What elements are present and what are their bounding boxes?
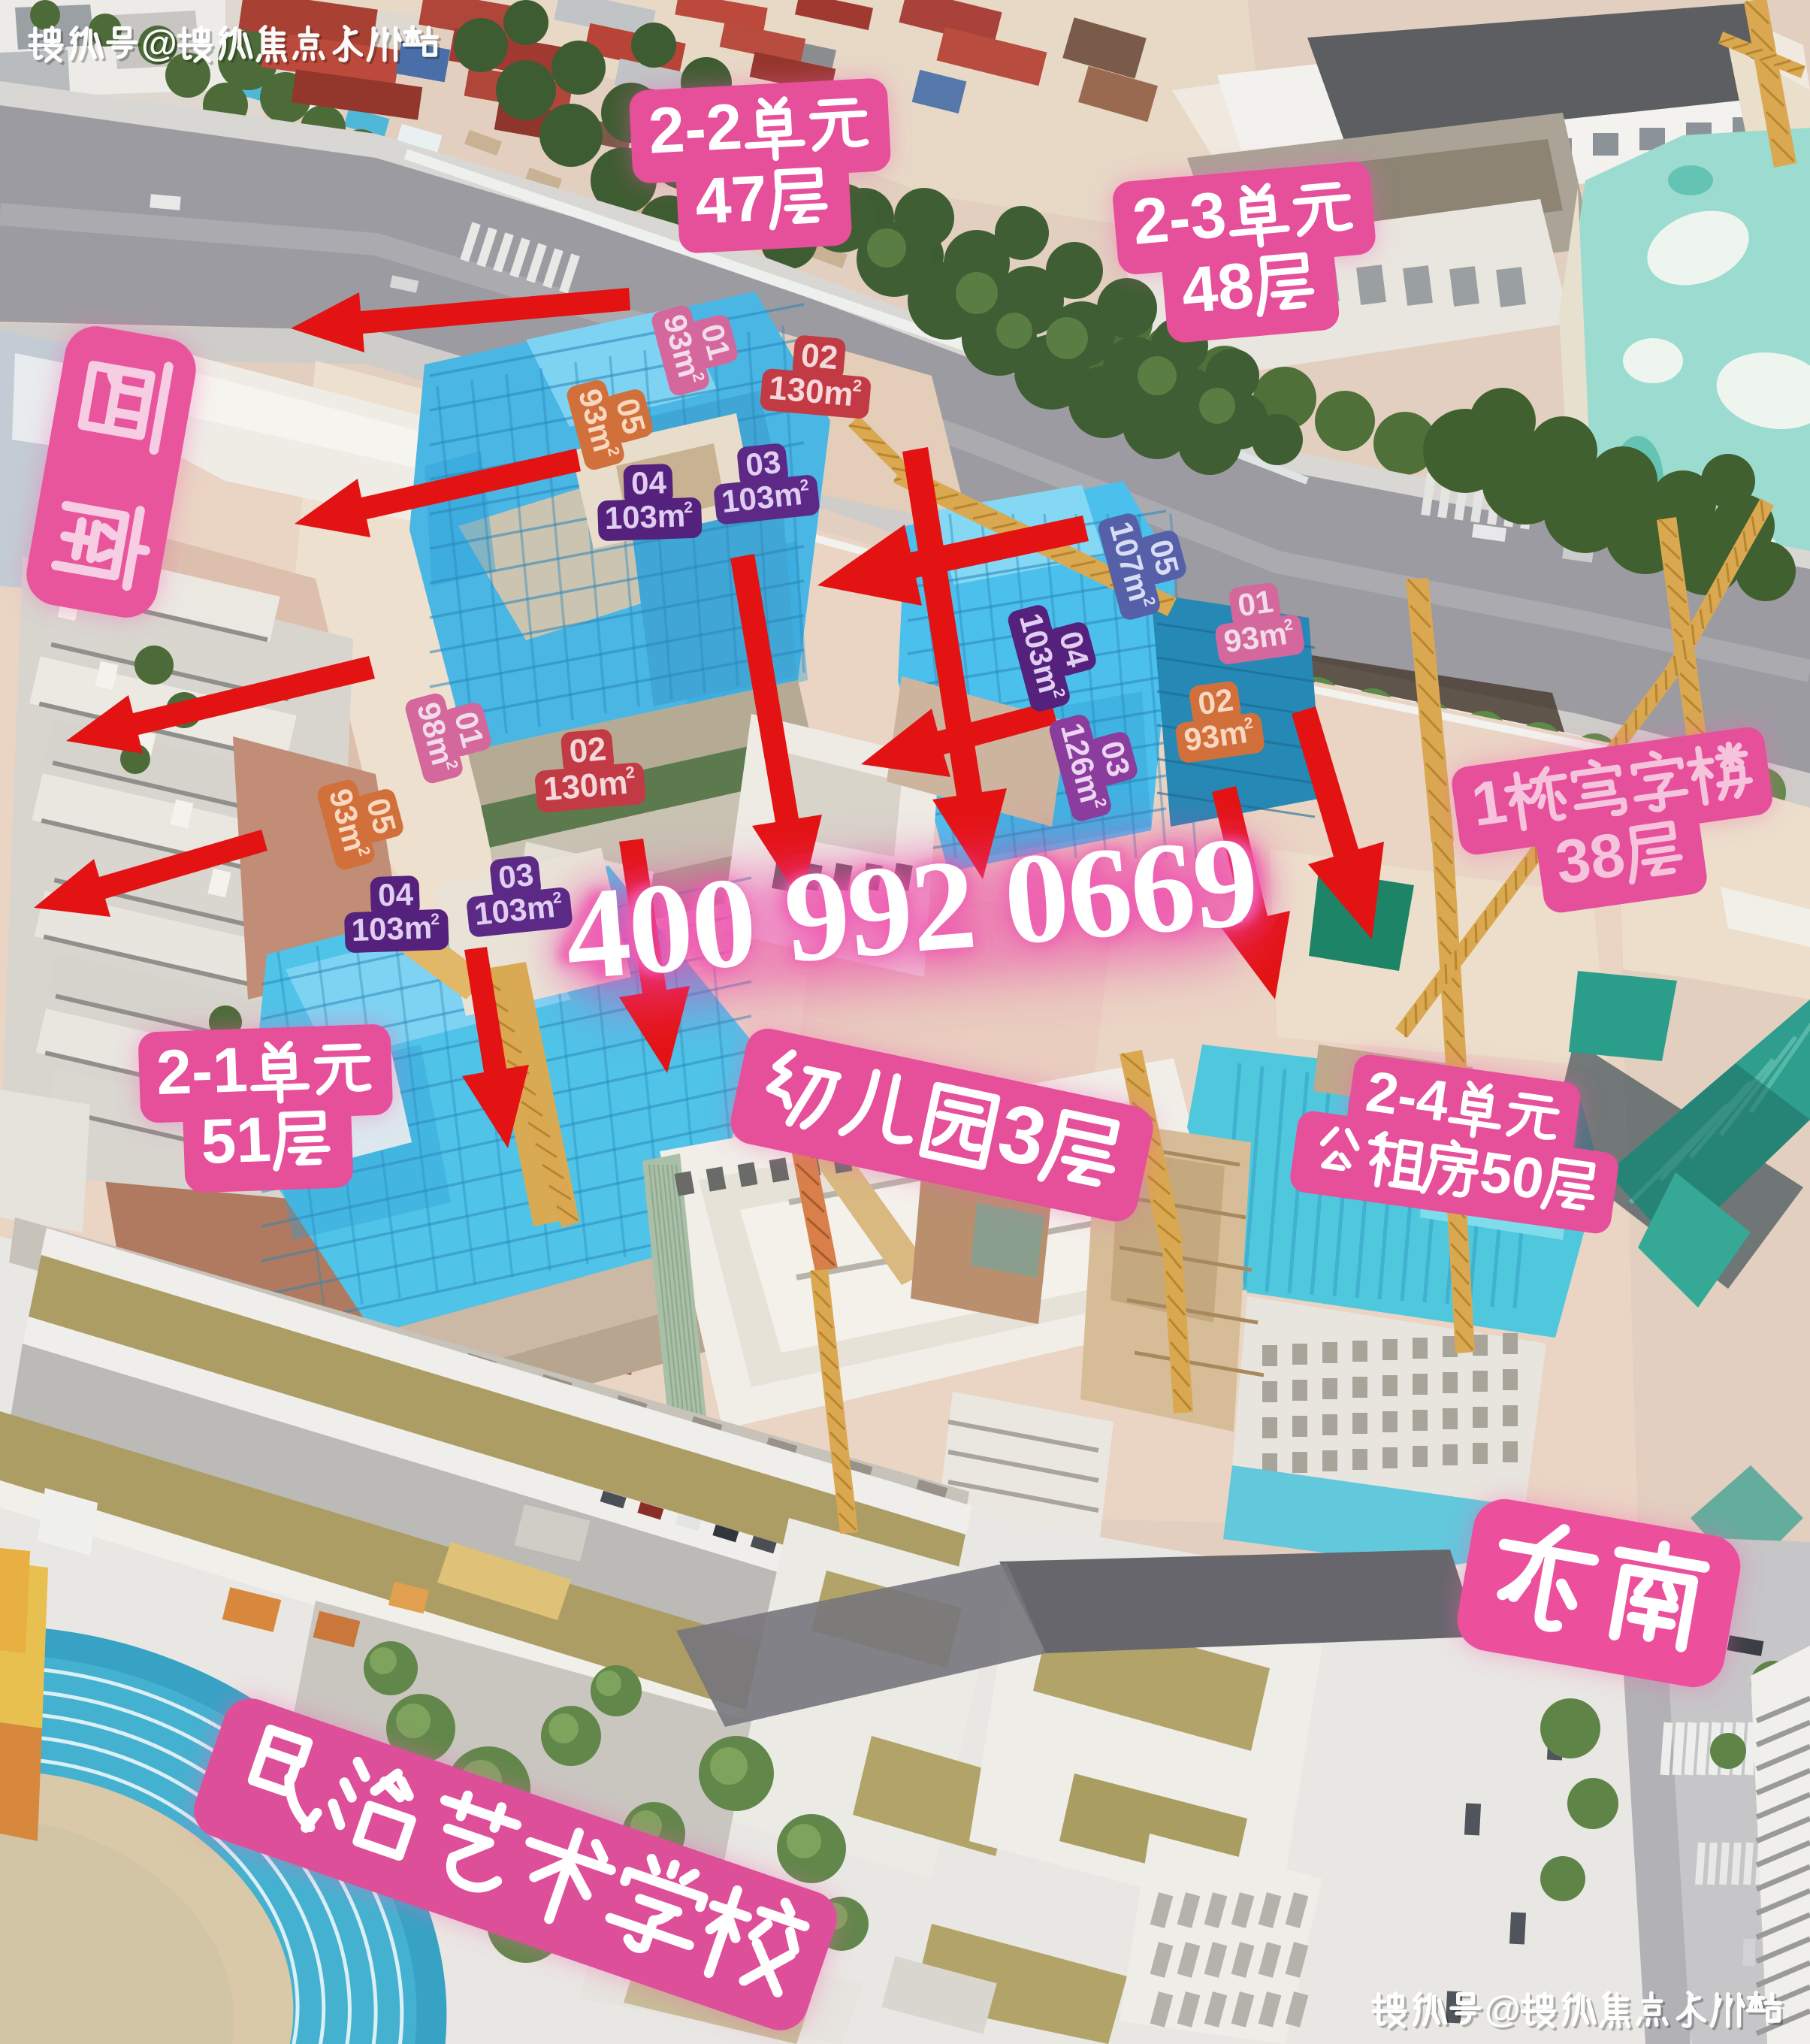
svg-text:48: 48 <box>1179 249 1257 328</box>
svg-text:103m: 103m <box>351 909 433 948</box>
svg-text:130m: 130m <box>542 764 629 809</box>
svg-text:02: 02 <box>799 337 839 376</box>
svg-text:03: 03 <box>744 444 782 483</box>
svg-text:2: 2 <box>431 911 440 928</box>
svg-text:2: 2 <box>799 476 810 494</box>
svg-text:2: 2 <box>684 499 693 516</box>
svg-text:50: 50 <box>1476 1140 1549 1212</box>
svg-text:2-1: 2-1 <box>156 1034 249 1108</box>
svg-text:38: 38 <box>1552 820 1629 897</box>
svg-text:2-2: 2-2 <box>647 90 744 167</box>
svg-text:03: 03 <box>497 857 535 896</box>
svg-text:103m: 103m <box>604 497 686 536</box>
svg-text:04: 04 <box>377 876 414 913</box>
svg-text:51: 51 <box>200 1104 273 1177</box>
svg-text:@: @ <box>141 23 177 64</box>
svg-text:02: 02 <box>568 730 608 770</box>
svg-text:130m: 130m <box>767 370 854 414</box>
svg-text:2: 2 <box>624 763 635 782</box>
svg-text:2: 2 <box>552 889 563 907</box>
svg-text:04: 04 <box>630 464 667 501</box>
svg-text:2: 2 <box>852 376 863 395</box>
svg-text:2-4: 2-4 <box>1362 1060 1453 1134</box>
svg-text:2-3: 2-3 <box>1130 178 1229 258</box>
svg-text:@: @ <box>1485 1989 1521 2030</box>
svg-text:47: 47 <box>693 162 769 238</box>
